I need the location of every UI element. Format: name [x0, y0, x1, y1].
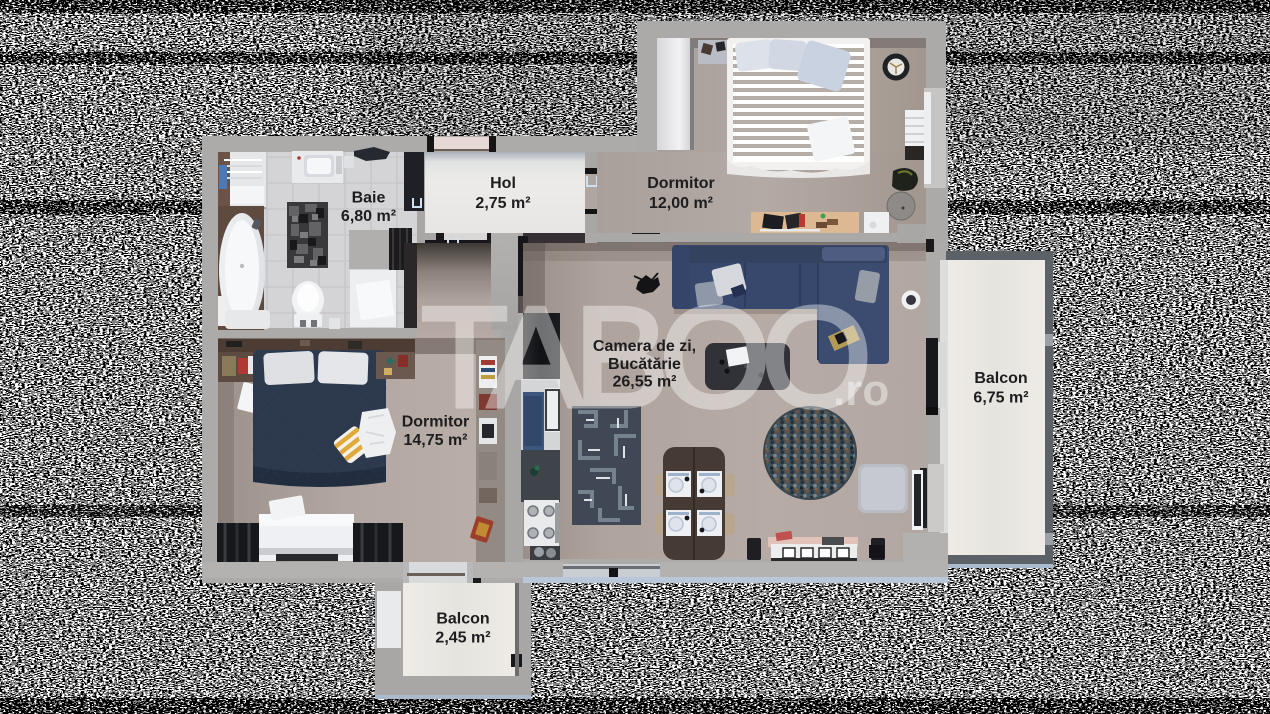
svg-text:Camera de zi,: Camera de zi,	[593, 338, 696, 355]
svg-text:26,55 m²: 26,55 m²	[612, 374, 676, 391]
svg-text:2,45 m²: 2,45 m²	[435, 630, 490, 647]
svg-text:Balcon: Balcon	[974, 370, 1027, 387]
svg-text:Balcon: Balcon	[436, 611, 489, 628]
svg-text:6,80 m²: 6,80 m²	[341, 208, 396, 225]
svg-text:2,75 m²: 2,75 m²	[475, 195, 530, 212]
svg-text:Dormitor: Dormitor	[647, 175, 715, 192]
svg-text:Baie: Baie	[352, 190, 386, 207]
svg-text:12,00 m²: 12,00 m²	[649, 195, 713, 212]
svg-text:Hol: Hol	[490, 175, 516, 192]
svg-text:14,75 m²: 14,75 m²	[403, 432, 467, 449]
svg-text:Bucătărie: Bucătărie	[608, 356, 681, 373]
svg-text:.ro: .ro	[833, 366, 889, 415]
svg-text:Dormitor: Dormitor	[402, 414, 470, 431]
svg-text:6,75 m²: 6,75 m²	[973, 390, 1028, 407]
